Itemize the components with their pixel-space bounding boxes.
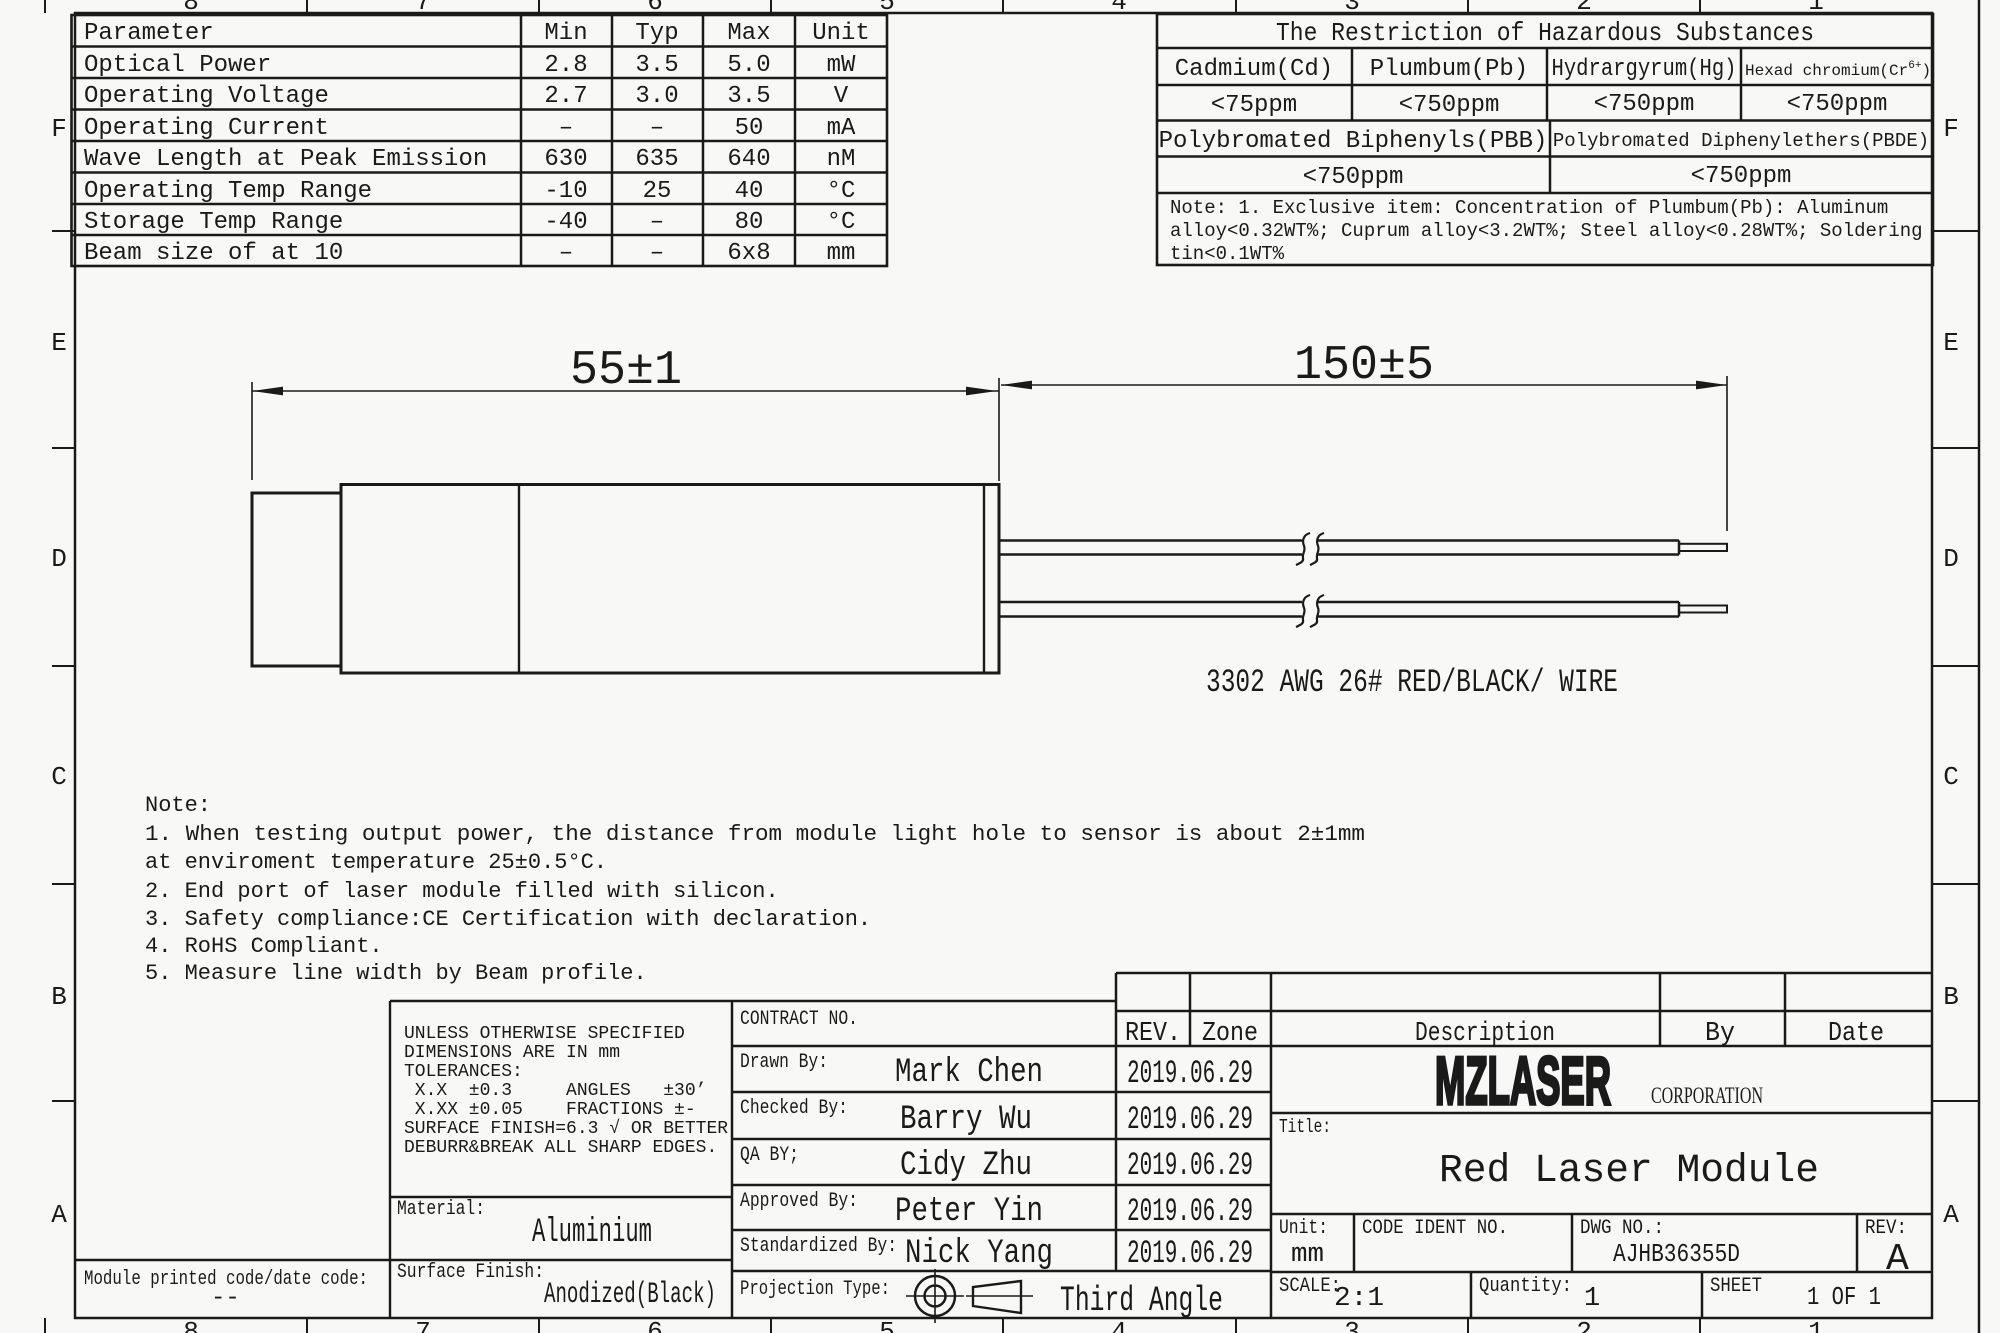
svg-text:Anodized(Black): Anodized(Black) <box>544 1278 716 1312</box>
svg-text:SCALE:: SCALE: <box>1279 1275 1341 1298</box>
svg-text:Hexad chromium(Cr6+): Hexad chromium(Cr6+) <box>1745 60 1931 80</box>
svg-text:C: C <box>1943 762 1959 792</box>
svg-text:630: 630 <box>544 146 587 173</box>
svg-text:B: B <box>51 982 67 1012</box>
svg-text:640: 640 <box>727 146 770 173</box>
svg-text:7: 7 <box>415 1317 431 1333</box>
svg-text:Unit: Unit <box>812 20 870 47</box>
svg-text:DIMENSIONS ARE IN mm: DIMENSIONS ARE IN mm <box>404 1043 620 1063</box>
svg-text:--: -- <box>211 1285 240 1312</box>
svg-text:mW: mW <box>827 52 856 79</box>
svg-text:2.8: 2.8 <box>544 52 587 79</box>
svg-text:alloy<0.32WT%; Cuprum alloy<3.: alloy<0.32WT%; Cuprum alloy<3.2WT%; Stee… <box>1170 220 1923 242</box>
svg-text:C: C <box>51 762 67 792</box>
svg-text:80: 80 <box>735 209 764 236</box>
svg-text:SHEET: SHEET <box>1710 1275 1762 1298</box>
svg-text:CONTRACT NO.: CONTRACT NO. <box>740 1008 858 1031</box>
svg-text:Typ: Typ <box>635 20 678 47</box>
svg-text:F: F <box>51 114 67 144</box>
svg-text:TOLERANCES:: TOLERANCES: <box>404 1062 523 1082</box>
svg-text:By: By <box>1705 1019 1735 1049</box>
svg-text:Cadmium(Cd): Cadmium(Cd) <box>1175 56 1333 83</box>
svg-text:REV.: REV. <box>1125 1019 1181 1049</box>
svg-text:Approved By:: Approved By: <box>740 1190 858 1213</box>
svg-text:Peter Yin: Peter Yin <box>895 1193 1043 1231</box>
svg-text:Storage Temp Range: Storage Temp Range <box>84 209 343 236</box>
svg-text:635: 635 <box>635 146 678 173</box>
svg-text:SURFACE FINISH=6.3 √ OR BETTER: SURFACE FINISH=6.3 √ OR BETTER <box>404 1118 728 1139</box>
svg-text:–: – <box>650 115 664 142</box>
svg-text:°C: °C <box>827 178 856 205</box>
svg-text:<750ppm: <750ppm <box>1787 91 1888 118</box>
svg-text:A: A <box>51 1200 67 1230</box>
svg-text:Beam size of at 10: Beam size of at 10 <box>84 240 343 267</box>
svg-text:Checked By:: Checked By: <box>740 1097 848 1120</box>
svg-text:Cidy Zhu: Cidy Zhu <box>900 1147 1032 1185</box>
svg-text:Parameter: Parameter <box>84 20 214 47</box>
svg-text:Operating Current: Operating Current <box>84 115 329 142</box>
svg-text:Aluminium: Aluminium <box>532 1214 652 1252</box>
svg-text:QA BY;: QA BY; <box>740 1144 799 1167</box>
svg-text:Plumbum(Pb): Plumbum(Pb) <box>1370 56 1528 83</box>
svg-text:3.5: 3.5 <box>727 83 770 110</box>
svg-text:2019.06.29: 2019.06.29 <box>1127 1235 1253 1272</box>
svg-text:Unit:: Unit: <box>1279 1217 1328 1240</box>
svg-text:tin<0.1WT%: tin<0.1WT% <box>1170 243 1285 265</box>
svg-text:2019.06.29: 2019.06.29 <box>1127 1147 1253 1184</box>
svg-text:1: 1 <box>1584 1284 1600 1314</box>
svg-text:25: 25 <box>643 178 672 205</box>
svg-text:3: 3 <box>1344 1317 1360 1333</box>
svg-text:Polybromated Biphenyls(PBB): Polybromated Biphenyls(PBB) <box>1159 128 1548 155</box>
svg-text:3302 AWG 26# RED/BLACK/ WIRE: 3302 AWG 26# RED/BLACK/ WIRE <box>1206 664 1618 701</box>
svg-text:E: E <box>1943 328 1959 358</box>
svg-text:at enviroment temperature 25±0: at enviroment temperature 25±0.5°C. <box>145 850 607 875</box>
svg-text:Title:: Title: <box>1279 1116 1331 1138</box>
svg-text:A: A <box>1943 1200 1959 1230</box>
svg-text:Min: Min <box>544 20 587 47</box>
svg-text:–: – <box>650 209 664 236</box>
svg-text:3.0: 3.0 <box>635 83 678 110</box>
svg-text:Drawn By:: Drawn By: <box>740 1051 828 1074</box>
svg-text:1 OF 1: 1 OF 1 <box>1807 1282 1881 1312</box>
svg-text:CODE IDENT NO.: CODE IDENT NO. <box>1362 1217 1508 1240</box>
svg-text:Zone: Zone <box>1202 1019 1258 1049</box>
svg-text:D: D <box>1943 544 1959 574</box>
svg-text:3. Safety compliance:CE Certif: 3. Safety compliance:CE Certification wi… <box>145 907 871 932</box>
svg-text:Hydrargyrum(Hg): Hydrargyrum(Hg) <box>1552 56 1737 83</box>
svg-text:REV:: REV: <box>1865 1217 1907 1240</box>
svg-text:5.0: 5.0 <box>727 52 770 79</box>
svg-text:Mark Chen: Mark Chen <box>895 1054 1043 1092</box>
svg-text:55±1: 55±1 <box>570 344 682 398</box>
svg-text:2:1: 2:1 <box>1334 1284 1384 1314</box>
svg-text:1: 1 <box>1808 1317 1824 1333</box>
svg-text:mA: mA <box>827 115 856 142</box>
svg-text:Barry Wu: Barry Wu <box>900 1101 1032 1139</box>
svg-text:2019.06.29: 2019.06.29 <box>1127 1193 1253 1230</box>
svg-text:8: 8 <box>183 1317 199 1333</box>
svg-text:°C: °C <box>827 209 856 236</box>
svg-text:Optical Power: Optical Power <box>84 52 271 79</box>
svg-text:40: 40 <box>735 178 764 205</box>
svg-text:AJHB36355D: AJHB36355D <box>1613 1239 1740 1269</box>
svg-text:–: – <box>559 115 573 142</box>
svg-text:2019.06.29: 2019.06.29 <box>1127 1101 1253 1138</box>
svg-text:–: – <box>559 240 573 267</box>
svg-text:–: – <box>650 240 664 267</box>
svg-text:150±5: 150±5 <box>1294 339 1434 393</box>
svg-text:6: 6 <box>647 1317 663 1333</box>
svg-text:Surface Finish:: Surface Finish: <box>397 1261 544 1284</box>
svg-text:X.X ±0.3 ANGLES ±30’: X.X ±0.3 ANGLES ±30’ <box>404 1081 706 1101</box>
svg-text:Quantity:: Quantity: <box>1479 1275 1572 1298</box>
svg-text:<750ppm: <750ppm <box>1303 164 1404 191</box>
svg-text:-10: -10 <box>544 178 587 205</box>
svg-text:DEBURR&BREAK ALL SHARP EDGES.: DEBURR&BREAK ALL SHARP EDGES. <box>404 1138 717 1158</box>
svg-text:Operating Voltage: Operating Voltage <box>84 83 329 110</box>
svg-text:nM: nM <box>827 146 856 173</box>
svg-text:5: 5 <box>879 1317 895 1333</box>
svg-text:Max: Max <box>727 20 770 47</box>
svg-text:DWG NO.:: DWG NO.: <box>1580 1217 1664 1240</box>
svg-text:Projection Type:: Projection Type: <box>740 1278 890 1301</box>
svg-text:5. Measure line width by Beam: 5. Measure line width by Beam profile. <box>145 961 647 986</box>
svg-text:-40: -40 <box>544 209 587 236</box>
svg-text:X.XX ±0.05 FRACTIONS ±-: X.XX ±0.05 FRACTIONS ±- <box>404 1100 696 1120</box>
svg-text:mm: mm <box>827 240 856 267</box>
svg-text:Standardized By:: Standardized By: <box>740 1235 897 1258</box>
svg-text:50: 50 <box>735 115 764 142</box>
svg-text:3.5: 3.5 <box>635 52 678 79</box>
svg-text:2. End port of laser module fi: 2. End port of laser module filled with … <box>145 879 779 904</box>
svg-text:Polybromated Diphenylethers(PB: Polybromated Diphenylethers(PBDE) <box>1553 130 1929 152</box>
svg-text:2: 2 <box>1576 1317 1592 1333</box>
svg-text:V: V <box>834 83 849 110</box>
svg-text:UNLESS OTHERWISE SPECIFIED: UNLESS OTHERWISE SPECIFIED <box>404 1024 685 1044</box>
svg-text:Note:: Note: <box>145 793 211 818</box>
svg-text:<75ppm: <75ppm <box>1211 92 1297 119</box>
svg-text:Red Laser Module: Red Laser Module <box>1439 1149 1819 1194</box>
svg-text:<750ppm: <750ppm <box>1691 163 1792 190</box>
svg-text:<750ppm: <750ppm <box>1399 92 1500 119</box>
svg-text:D: D <box>51 544 67 574</box>
svg-text:A: A <box>1886 1238 1909 1281</box>
svg-text:B: B <box>1943 982 1959 1012</box>
svg-text:1. When testing output power,: 1. When testing output power, the distan… <box>145 822 1365 847</box>
svg-text:Material:: Material: <box>397 1198 485 1221</box>
svg-text:CORPORATION: CORPORATION <box>1651 1083 1763 1108</box>
svg-text:Date: Date <box>1828 1019 1884 1049</box>
svg-text:F: F <box>1943 114 1959 144</box>
svg-text:MZLASER: MZLASER <box>1435 1043 1611 1119</box>
svg-text:The Restriction of Hazardous S: The Restriction of Hazardous Substances <box>1276 18 1814 48</box>
svg-text:E: E <box>51 328 67 358</box>
svg-text:6x8: 6x8 <box>727 240 770 267</box>
svg-text:<750ppm: <750ppm <box>1594 91 1695 118</box>
svg-text:Note: 1. Exclusive item: Conce: Note: 1. Exclusive item: Concentration o… <box>1170 197 1888 219</box>
svg-text:mm: mm <box>1291 1240 1324 1270</box>
svg-text:2019.06.29: 2019.06.29 <box>1127 1055 1253 1092</box>
svg-text:4. RoHS Compliant.: 4. RoHS Compliant. <box>145 934 383 959</box>
svg-text:Operating Temp Range: Operating Temp Range <box>84 178 372 205</box>
svg-text:Nick Yang: Nick Yang <box>905 1235 1053 1273</box>
svg-text:Third Angle: Third Angle <box>1060 1281 1223 1321</box>
svg-text:4: 4 <box>1111 0 1127 17</box>
svg-text:2.7: 2.7 <box>544 83 587 110</box>
svg-text:Wave Length at Peak Emission: Wave Length at Peak Emission <box>84 146 487 173</box>
